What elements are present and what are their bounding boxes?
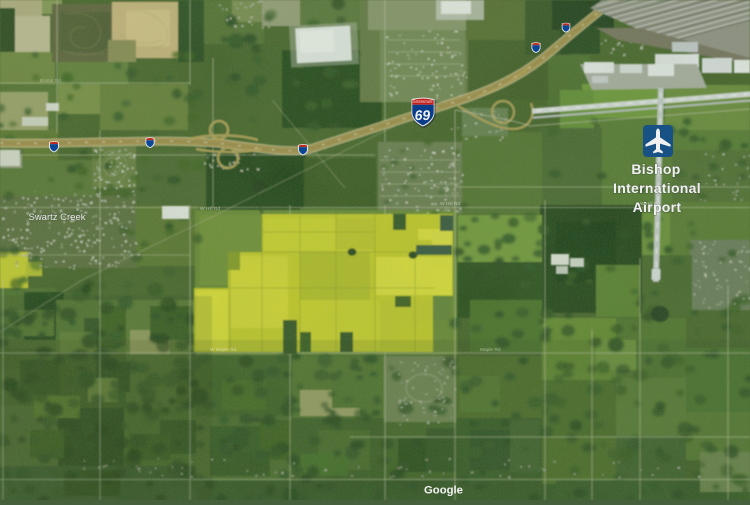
svg-text:W Hill Rd: W Hill Rd: [440, 201, 460, 207]
svg-text:69: 69: [414, 107, 431, 123]
svg-text:Bishop: Bishop: [631, 161, 680, 177]
svg-text:W Hill Rd: W Hill Rd: [640, 201, 660, 207]
svg-text:Google: Google: [424, 485, 463, 497]
svg-text:Bristol Rd: Bristol Rd: [40, 78, 61, 84]
svg-text:International: International: [613, 180, 701, 196]
svg-text:INTERSTATE: INTERSTATE: [413, 100, 432, 104]
svg-text:W Hill Rd: W Hill Rd: [200, 206, 220, 212]
svg-text:Maple Rd: Maple Rd: [480, 347, 501, 353]
svg-text:W Maple Rd: W Maple Rd: [210, 347, 237, 353]
svg-text:Swartz Creek: Swartz Creek: [28, 212, 85, 223]
